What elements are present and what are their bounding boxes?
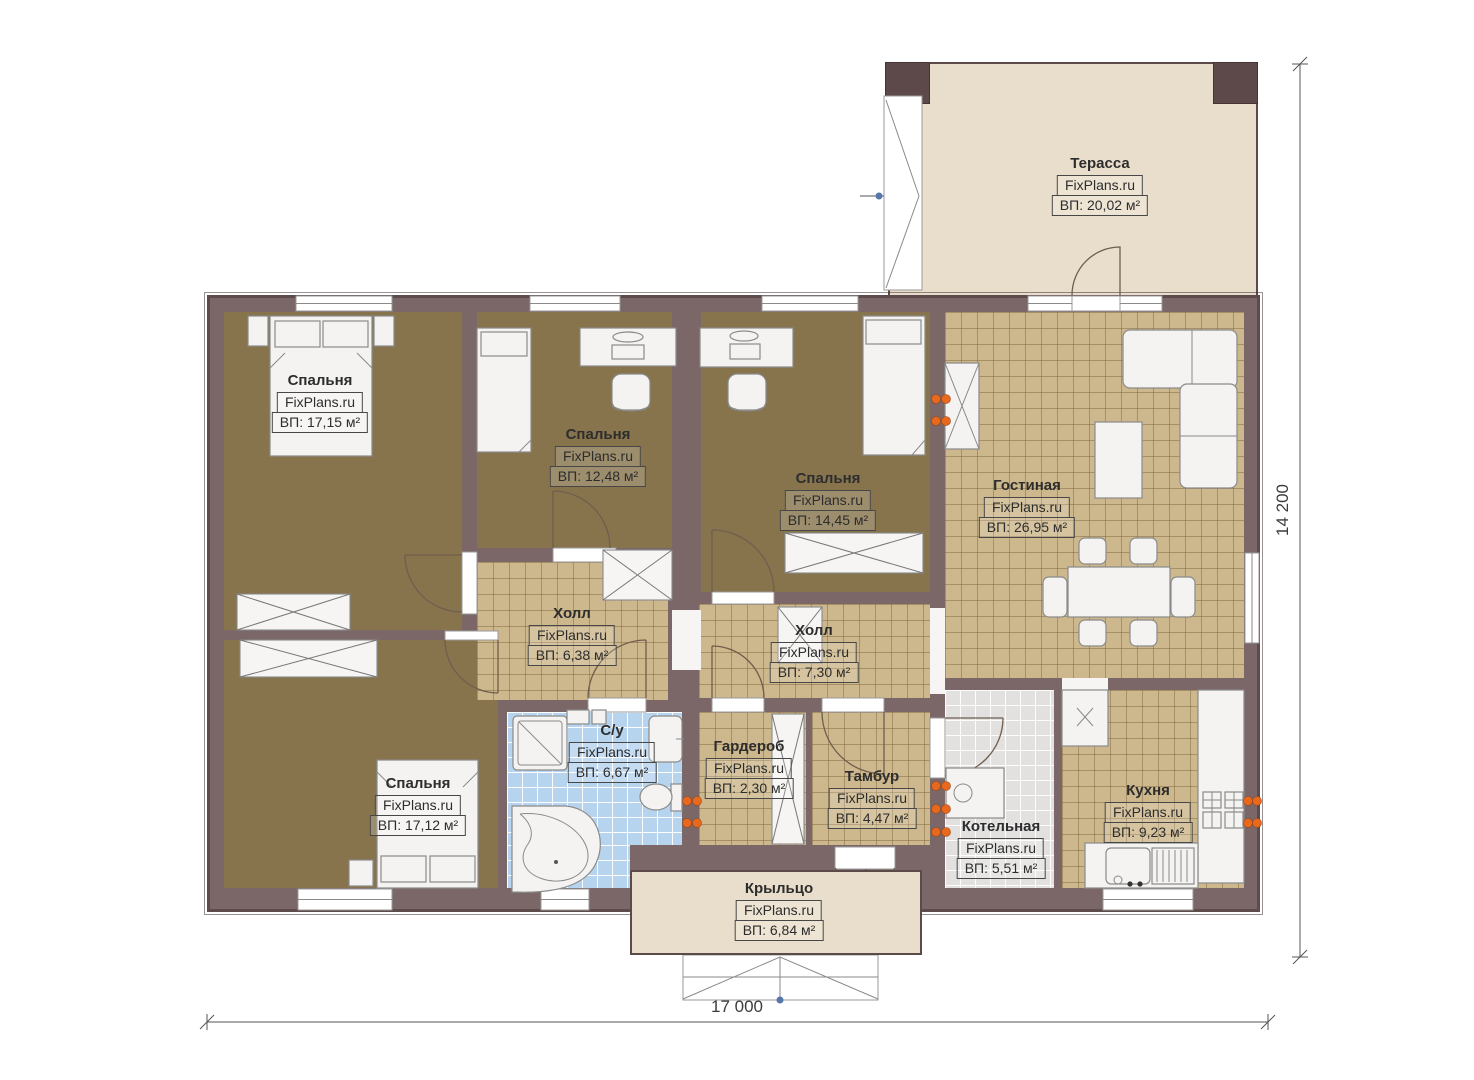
room-area: ВП: 20,02 м² (1052, 195, 1148, 216)
window (296, 296, 392, 311)
room-name: Спальня (386, 775, 451, 792)
closet-box (785, 533, 923, 573)
room-area: ВП: 6,38 м² (528, 645, 617, 666)
floor-plan-canvas: 17 000 14 200 Терасса FixPlans.ru ВП: 20… (0, 0, 1474, 1080)
room-area: ВП: 9,23 м² (1104, 822, 1193, 843)
door-bedroom3 (712, 530, 774, 604)
coffee-table (1095, 422, 1142, 498)
room-watermark: FixPlans.ru (785, 490, 871, 511)
room-name: Гостиная (993, 477, 1061, 494)
room-name: Тамбур (845, 768, 899, 785)
label-bedroom2: Спальня FixPlans.ru ВП: 12,48 м² (550, 426, 646, 487)
room-watermark: FixPlans.ru (1105, 802, 1191, 823)
room-watermark: FixPlans.ru (375, 795, 461, 816)
dimension-right: 14 200 (1273, 57, 1308, 964)
terrace-door (1072, 247, 1120, 311)
door-bedroom4 (445, 631, 498, 693)
room-watermark: FixPlans.ru (555, 446, 641, 467)
room-area: ВП: 14,45 м² (780, 510, 876, 531)
label-tambour: Тамбур FixPlans.ru ВП: 4,47 м² (828, 768, 917, 829)
label-kitchen: Кухня FixPlans.ru ВП: 9,23 м² (1104, 782, 1193, 843)
room-area: ВП: 7,30 м² (770, 662, 859, 683)
label-bedroom1: Спальня FixPlans.ru ВП: 17,15 м² (272, 372, 368, 433)
room-area: ВП: 12,48 м² (550, 466, 646, 487)
window (298, 889, 392, 910)
room-area: ВП: 2,30 м² (705, 778, 794, 799)
window (530, 296, 620, 311)
dimension-bottom: 17 000 (200, 997, 1275, 1030)
room-watermark: FixPlans.ru (1057, 175, 1143, 196)
room-watermark: FixPlans.ru (771, 642, 857, 663)
label-hall1: Холл FixPlans.ru ВП: 6,38 м² (528, 605, 617, 666)
room-name: Спальня (288, 372, 353, 389)
chair (728, 374, 766, 411)
dimension-height-label: 14 200 (1273, 484, 1292, 536)
label-hall2: Холл FixPlans.ru ВП: 7,30 м² (770, 622, 859, 683)
room-name: Крыльцо (745, 880, 813, 897)
label-boiler: Котельная FixPlans.ru ВП: 5,51 м² (957, 818, 1046, 879)
room-name: С/у (600, 722, 623, 739)
radiator (683, 797, 702, 828)
room-watermark: FixPlans.ru (829, 788, 915, 809)
room-watermark: FixPlans.ru (529, 625, 615, 646)
boiler-unit (946, 768, 1004, 818)
room-watermark: FixPlans.ru (984, 497, 1070, 518)
closet-box (603, 550, 672, 600)
label-bedroom4: Спальня FixPlans.ru ВП: 17,12 м² (370, 775, 466, 836)
door-bedroom1 (405, 552, 477, 614)
room-area: ВП: 4,47 м² (828, 808, 917, 829)
room-area: ВП: 17,12 м² (370, 815, 466, 836)
desk (580, 328, 676, 366)
single-bed (477, 328, 531, 452)
single-bed (863, 316, 925, 455)
room-area: ВП: 5,51 м² (957, 858, 1046, 879)
window (762, 296, 858, 311)
room-name: Холл (553, 605, 591, 622)
label-bathroom: С/у FixPlans.ru ВП: 6,67 м² (568, 722, 657, 783)
label-porch: Крыльцо FixPlans.ru ВП: 6,84 м² (735, 880, 824, 941)
room-area: ВП: 6,84 м² (735, 920, 824, 941)
window (1103, 889, 1193, 910)
label-wardrobe: Гардероб FixPlans.ru ВП: 2,30 м² (705, 738, 794, 799)
radiator (1244, 797, 1262, 828)
kitchen-sink (1106, 848, 1194, 887)
room-name: Гардероб (714, 738, 785, 755)
window (541, 889, 589, 910)
dimension-width-label: 17 000 (711, 997, 763, 1016)
room-name: Спальня (796, 470, 861, 487)
terrace-stairs (860, 96, 922, 290)
label-bedroom3: Спальня FixPlans.ru ВП: 14,45 м² (780, 470, 876, 531)
room-name: Кухня (1126, 782, 1170, 799)
corner-bathtub (512, 806, 600, 892)
room-name: Котельная (962, 818, 1041, 835)
door-tambour (822, 698, 884, 774)
room-watermark: FixPlans.ru (958, 838, 1044, 859)
label-living: Гостиная FixPlans.ru ВП: 26,95 м² (979, 477, 1075, 538)
room-name: Терасса (1070, 155, 1129, 172)
door-wardrobe (712, 646, 764, 712)
room-area: ВП: 6,67 м² (568, 762, 657, 783)
room-area: ВП: 26,95 м² (979, 517, 1075, 538)
window (1245, 553, 1259, 643)
room-watermark: FixPlans.ru (736, 900, 822, 921)
radiator (932, 782, 951, 837)
room-watermark: FixPlans.ru (277, 392, 363, 413)
closet-box (240, 640, 377, 677)
room-watermark: FixPlans.ru (706, 758, 792, 779)
room-area: ВП: 17,15 м² (272, 412, 368, 433)
window (1120, 296, 1162, 311)
window (1028, 296, 1072, 311)
chair (612, 374, 650, 411)
room-watermark: FixPlans.ru (569, 742, 655, 763)
toilet (640, 784, 682, 811)
label-terrace: Терасса FixPlans.ru ВП: 20,02 м² (1052, 155, 1148, 216)
desk (700, 328, 793, 367)
closet-box (237, 594, 350, 630)
room-name: Холл (795, 622, 833, 639)
room-name: Спальня (566, 426, 631, 443)
dining-table (1043, 538, 1195, 646)
fireplace (945, 363, 979, 449)
shower (513, 716, 567, 770)
